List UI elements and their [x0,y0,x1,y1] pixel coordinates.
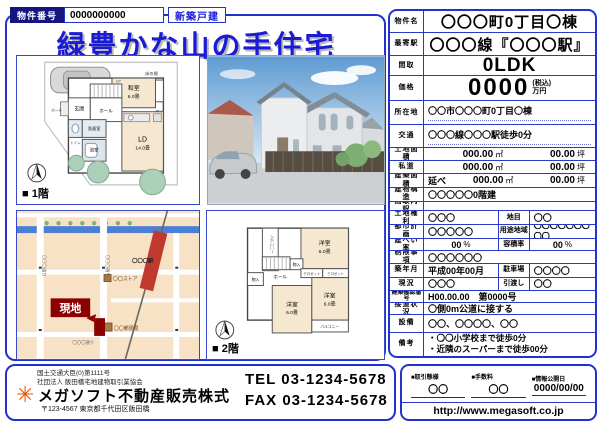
handover-value: 〇〇 [530,278,595,290]
fee-field: ■手数料 〇〇 [471,372,525,398]
spec-label: 駐車場 [498,264,530,277]
store-label: 〇〇ストア [113,277,138,283]
tel-number: TEL 03-1234-5678 [245,371,387,388]
transaction-info-box: ■取引態様 〇〇 ■手数料 〇〇 ■情報公開日 0000/00/00 http:… [400,364,597,421]
road-access-value: 〇側0m公道に接する [424,303,595,314]
spec-row-confirm-no: 建築確認番号 H00.00.00 第0000号 [390,291,595,304]
floor1-caption: ■ 1階 [22,185,49,201]
spec-label: 所在地 [390,101,424,124]
spec-row-private-road: 私道 000.00㎡00.00坪 [390,161,595,174]
spec-label: 交通 [390,125,424,146]
balcony1-label: バルコニー [269,235,274,254]
room-washitsu-label: 和室 [128,84,140,92]
floorplan-1f-panel: 和室 6.0畳 床の間 押入 LD 14.0畳 UP ホール 玄関 ポーチ [16,55,200,205]
senmen-label: 洗面室 [88,125,100,131]
tsubo-unit: 坪 [575,175,591,186]
fee-label: ■手数料 [471,372,493,381]
spec-label: 土地権利 [390,211,424,224]
spec-label: 設備 [390,315,424,332]
m2-unit: ㎡ [493,162,509,173]
land-right-value: 〇〇〇 [424,211,498,224]
spec-row-land-right: 土地権利 〇〇〇 地目 〇〇 [390,211,595,225]
site-block [94,318,105,336]
spec-row-address: 所在地 〇〇市〇〇〇町0丁目〇棟 [390,101,595,125]
structure-value: 〇〇〇〇〇0階建 [424,188,595,201]
spec-row-layout-detail: 間取内訳 [390,202,595,212]
spec-label: 最寄駅 [390,33,424,54]
spec-table: 物件名 〇〇〇町0丁目〇棟 最寄駅 〇〇〇線『〇〇〇駅』 間取 0LDK 価格 … [388,9,597,358]
restriction-value: 〇〇〇〇〇〇 [424,251,595,263]
spec-row-layout: 間取 0LDK [390,56,595,77]
location-map-drawing: 〇〇〇駅 〇〇ストア 〇〇郵便局 〇〇〇通り 〇〇〇通り 〇〇〇通り 現地 [17,211,199,359]
m2-unit: ㎡ [493,149,509,160]
property-name-value: 〇〇〇町0丁目〇棟 [424,11,595,32]
spec-row-city-plan: 都市計画 〇〇〇〇〇 用途地域 〇〇〇〇〇〇〇〇〇 [390,225,595,239]
hall2-label: ホール [273,275,287,280]
spec-label: 備考 [390,333,424,356]
room2-2-size: 6.0畳 [286,310,298,316]
company-logo-icon: ✳ [16,382,34,408]
building-m2: 000.00 [448,175,503,186]
tsubo-unit: 坪 [575,162,591,173]
house-photo-drawing [208,56,384,204]
land-m2: 000.00 [428,149,493,160]
land-tsubo: 00.00 [509,149,575,160]
divider [428,144,591,145]
price-value: 0000 [468,76,529,100]
station-value: 〇〇〇線『〇〇〇駅』 [424,33,595,54]
spec-label: 私道 [390,161,424,173]
spec-row-building-area: 建築面積 延べ000.00㎡00.00坪 [390,174,595,188]
spec-row-restriction: 制限事項 〇〇〇〇〇〇 [390,251,595,264]
spec-row-built: 築年月 平成00年00月 駐車場 〇〇〇〇 [390,264,595,278]
land-category-value: 〇〇 [530,211,595,224]
closet1-label: クロゼット [303,271,320,276]
house-photo [207,55,385,205]
property-number-value: 0000000000 [64,7,164,23]
room2-1-label: 洋室 [319,239,331,247]
room-washitsu-size: 6.0畳 [128,94,140,100]
road-tsubo: 00.00 [509,162,575,173]
spec-row-structure: 建物構造 〇〇〇〇〇0階建 [390,188,595,202]
room2-2-label: 洋室 [286,300,298,308]
release-date-field: ■情報公開日 0000/00/00 [532,374,586,396]
bcr-value: 00 [451,240,461,250]
spec-row-status: 現況 〇〇〇 引渡し 〇〇 [390,278,595,291]
bath-label: 浴室 [90,146,99,153]
street-name-left: 〇〇〇通り [41,255,48,277]
spec-label: 間取 [390,56,424,76]
spec-label: 接道状況 [390,303,424,314]
room-ld-size: 14.0畳 [135,145,150,151]
room2-1-size: 6.0畳 [319,249,331,255]
floorplan-1f-drawing: 和室 6.0畳 床の間 押入 LD 14.0畳 UP ホール 玄関 ポーチ [17,56,199,204]
spec-row-land-area: 土地面積 000.00㎡00.00坪 [390,148,595,162]
layout-value: 0LDK [424,56,595,76]
road-m2: 000.00 [428,162,493,173]
street-name-bottom: 〇〇〇通り [72,339,94,346]
spec-label: 価格 [390,76,424,99]
company-address: 〒123-4567 東京都千代田区飯田橋 [41,404,150,414]
use-district-value: 〇〇〇〇〇〇〇〇〇 [530,225,595,238]
price-unit-label: 万円 [532,88,551,96]
street-name-center: 〇〇〇通り [104,255,111,277]
river [17,226,199,233]
room2-3-label: 洋室 [324,291,336,299]
remarks-line-1: ・〇〇小学校まで徒歩0分 [428,333,526,344]
spec-label: 引渡し [498,278,530,290]
status-value: 〇〇〇 [424,278,498,290]
stairs-up-label: UP [116,80,122,84]
percent-unit: % [563,240,572,249]
equipment-value: 〇〇、〇〇〇〇、〇〇 [424,315,595,332]
deal-type-field: ■取引態様 〇〇 [411,372,465,398]
monoire1-label: 物入 [293,262,301,267]
floorplan-2f-panel: バルコニー 洋室 6.0畳 物入 ホール 物入 クロゼット クロゼット 洋室 6… [206,210,385,360]
tsubo-unit: 坪 [575,149,591,160]
building-tsubo: 00.00 [519,175,575,186]
deal-type-value: 〇〇 [411,381,465,398]
built-value: 平成00年00月 [424,264,498,277]
floorplan-2f-drawing: バルコニー 洋室 6.0畳 物入 ホール 物入 クロゼット クロゼット 洋室 6… [207,211,384,359]
remarks-line-2: ・近隣のスーパーまで徒歩00分 [428,344,548,355]
compass-icon [216,321,234,339]
property-type-badge: 新築戸建 [168,7,226,23]
release-date-label: ■情報公開日 [532,374,566,383]
deal-type-label: ■取引態様 [411,372,439,381]
m2-unit: ㎡ [503,175,519,186]
divider [428,120,591,121]
spec-row-price: 価格 0000 (税込)万円 [390,76,595,100]
post-office-label: 〇〇郵便局 [114,325,139,332]
spec-label: 現況 [390,278,424,290]
spec-label: 物件名 [390,11,424,32]
closet2-label: クロゼット [327,271,344,276]
spec-row-remarks: 備考 ・〇〇小学校まで徒歩0分 ・近隣のスーパーまで徒歩00分 [390,333,595,356]
genkan-label: 玄関 [74,106,84,113]
spec-label: 都市計画 [390,225,424,238]
access-value: 〇〇〇線〇〇〇駅徒歩0分 [428,128,591,141]
porch-label: ポーチ [51,108,62,113]
percent-unit: % [461,240,470,249]
balcony2-label: バルコニー [320,324,339,329]
spec-label: 建築確認番号 [390,291,424,303]
layout-detail-value [424,202,595,211]
spec-label: 用途地域 [498,225,530,238]
post-office-block [104,323,112,331]
spec-label: 制限事項 [390,251,424,263]
building-area-prefix: 延べ [428,174,446,187]
spec-label: 建築面積 [390,174,424,187]
spec-label: 容積率 [498,239,530,251]
company-url[interactable]: http://www.megasoft.co.jp [402,402,595,419]
license-line-1: 国土交通大臣(0)第1111号 [37,370,143,379]
station-label: 〇〇〇駅 [132,257,154,265]
fee-value: 〇〇 [471,381,525,398]
spec-row-road-access: 接道状況 〇側0m公道に接する [390,303,595,315]
tokonoma-label: 床の間 [145,70,157,76]
address-value: 〇〇市〇〇〇町0丁目〇棟 [428,104,591,117]
price-tax-note: (税込) [532,80,551,88]
site-label: 現地 [60,301,82,315]
toilet-label: トイレ [70,141,81,145]
spec-label: 間取内訳 [390,202,424,211]
spec-label: 建物構造 [390,188,424,201]
room-ld-label: LD [138,136,147,143]
spec-label: 地目 [498,211,530,224]
spec-row-equipment: 設備 〇〇、〇〇〇〇、〇〇 [390,315,595,333]
company-name: メガソフト不動産販売株式 [38,385,230,406]
city-plan-value: 〇〇〇〇〇 [424,225,498,238]
spec-row-name: 物件名 〇〇〇町0丁目〇棟 [390,11,595,33]
parking-value: 〇〇〇〇 [530,264,595,277]
spec-label: 築年月 [390,264,424,277]
spec-row-access: 交通 〇〇〇線〇〇〇駅徒歩0分 [390,125,595,147]
floor2-caption: ■ 2階 [212,340,239,356]
room2-3-size: 6.0畳 [324,301,336,307]
release-date-value: 0000/00/00 [532,383,586,396]
location-map-panel: 〇〇〇駅 〇〇ストア 〇〇郵便局 〇〇〇通り 〇〇〇通り 〇〇〇通り 現地 [16,210,200,360]
fax-number: FAX 03-1234-5678 [245,392,388,409]
spec-label: 土地面積 [390,148,424,161]
monoire2-label: 物入 [252,277,260,282]
spec-label: 建ぺい率 [390,239,424,251]
hall-label: ホール [99,109,113,114]
property-number-label: 物件番号 [10,7,64,23]
confirm-no-value: H00.00.00 第0000号 [424,291,595,303]
far-value: 00 [553,240,563,250]
spec-row-coverage: 建ぺい率 00% 容積率 00% [390,239,595,252]
property-flyer: 物件番号 0000000000 新築戸建 緑豊かな山の手住宅 和室 6.0畳 床… [0,0,600,424]
spec-row-station: 最寄駅 〇〇〇線『〇〇〇駅』 [390,33,595,55]
company-info-box: 国土交通大臣(0)第1111号 社団法人 飯田橋宅地建物取引業協会 ✳ メガソフ… [5,364,396,421]
compass-icon [28,164,46,182]
